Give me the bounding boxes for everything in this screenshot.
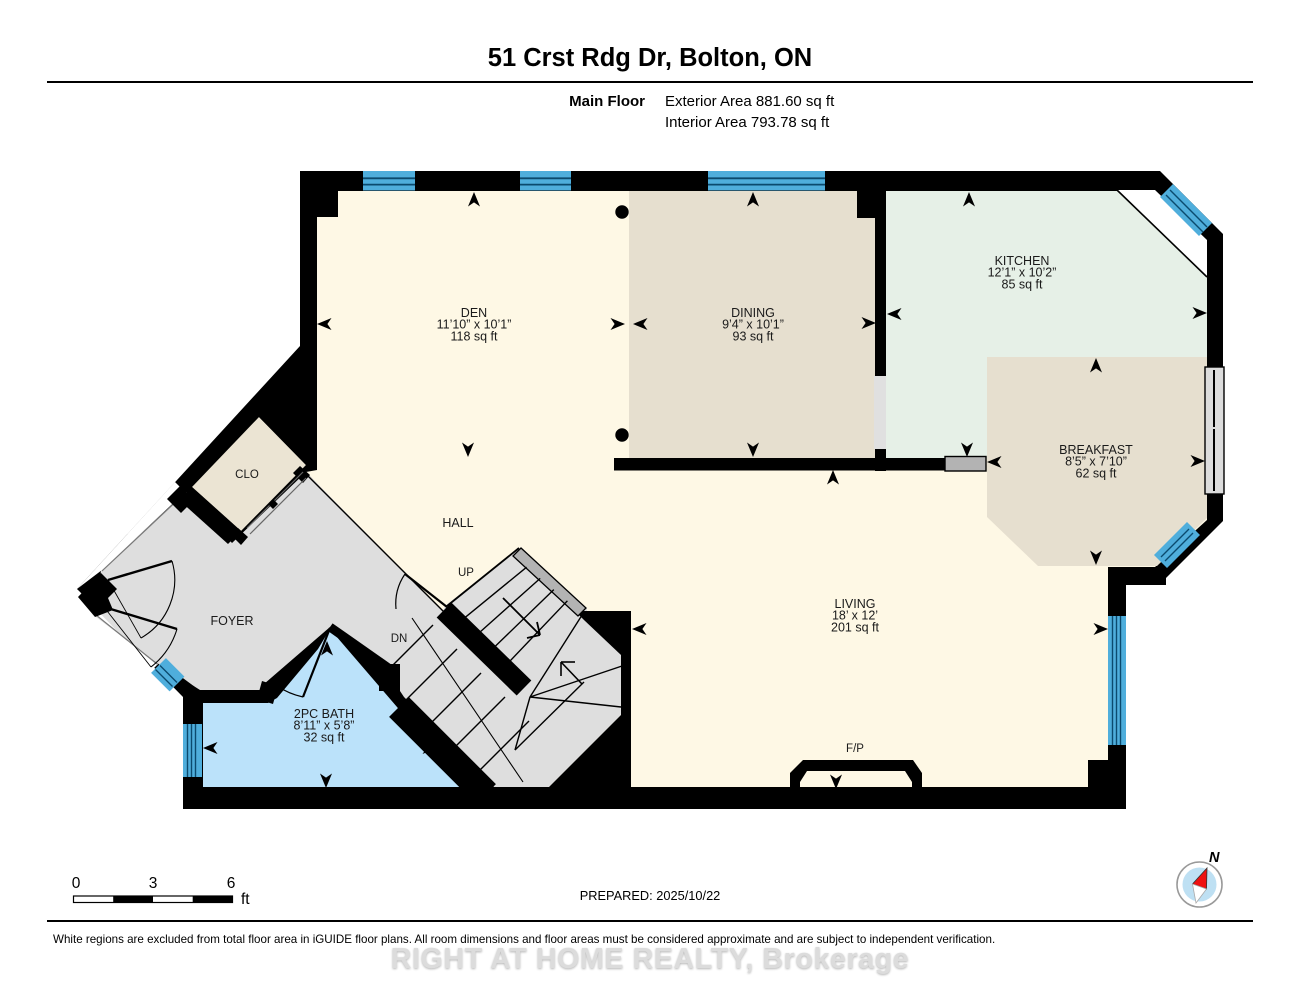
svg-text:LIVING18’ x 12’201 sq ft: LIVING18’ x 12’201 sq ft	[831, 597, 879, 634]
svg-text:6: 6	[227, 875, 236, 892]
svg-text:F/P: F/P	[846, 743, 864, 755]
svg-text:FOYER: FOYER	[210, 614, 253, 628]
svg-text:N: N	[1209, 850, 1220, 866]
svg-text:ft: ft	[241, 891, 250, 908]
svg-text:UP: UP	[458, 567, 474, 579]
svg-text:3: 3	[149, 875, 158, 892]
svg-text:0: 0	[72, 875, 81, 892]
svg-text:CLO: CLO	[235, 469, 259, 481]
svg-text:HALL: HALL	[442, 516, 473, 530]
svg-text:DN: DN	[391, 633, 408, 645]
svg-text:PREPARED: 2025/10/22: PREPARED: 2025/10/22	[580, 888, 721, 903]
